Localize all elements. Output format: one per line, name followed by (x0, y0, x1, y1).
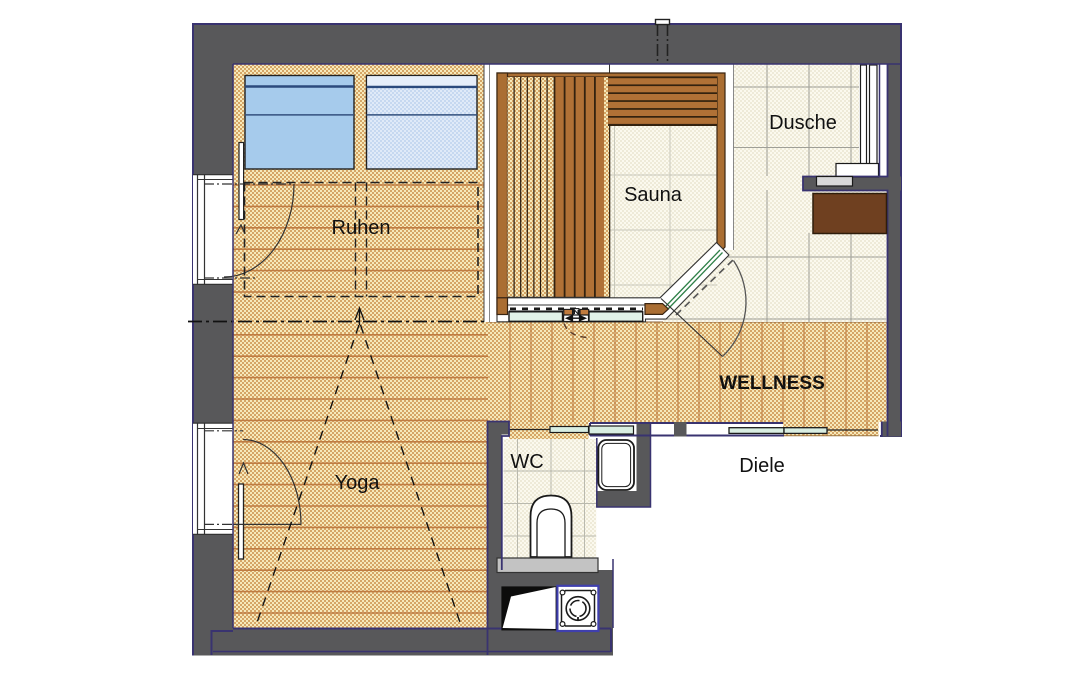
svg-text:Sauna: Sauna (624, 184, 683, 206)
svg-text:Ruhen: Ruhen (332, 217, 391, 239)
svg-text:Dusche: Dusche (769, 112, 837, 134)
svg-text:Diele: Diele (739, 455, 785, 477)
svg-text:WELLNESS: WELLNESS (719, 373, 825, 394)
svg-text:WC: WC (510, 451, 543, 473)
svg-text:Yoga: Yoga (335, 472, 381, 494)
